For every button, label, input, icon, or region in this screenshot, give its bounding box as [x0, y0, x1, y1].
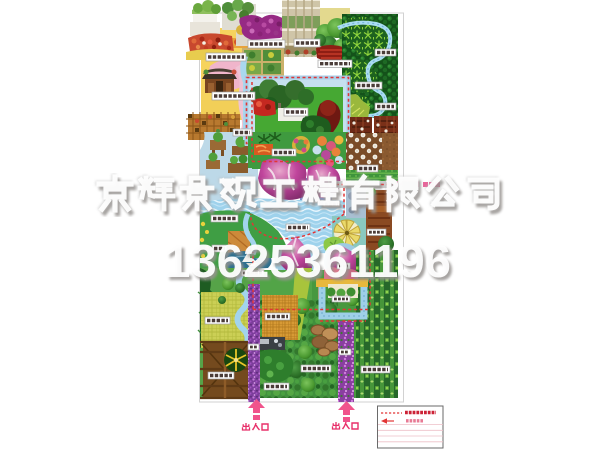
- svg-text:13625361196: 13625361196: [164, 235, 451, 287]
